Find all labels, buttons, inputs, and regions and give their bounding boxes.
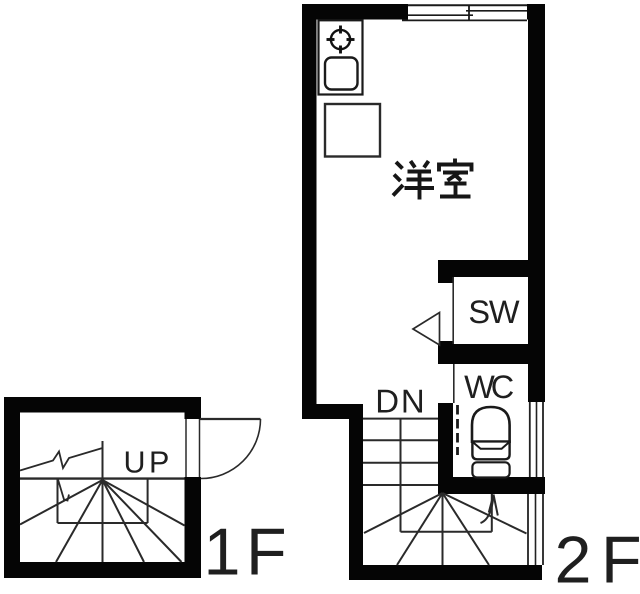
svg-text:SW: SW <box>468 294 519 330</box>
svg-text:UP: UP <box>124 446 173 480</box>
svg-text:1F: 1F <box>204 516 293 590</box>
svg-text:2F: 2F <box>555 523 640 594</box>
svg-text:DN: DN <box>375 383 426 420</box>
svg-text:WC: WC <box>464 369 514 405</box>
